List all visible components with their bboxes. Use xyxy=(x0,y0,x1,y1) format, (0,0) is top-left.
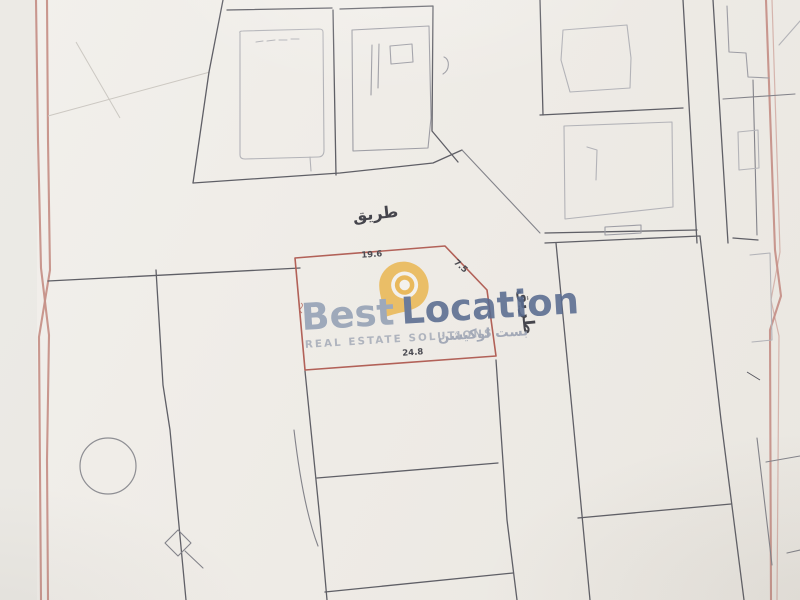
faint-corner-line xyxy=(779,21,800,45)
plots-right xyxy=(545,236,800,600)
building-outline xyxy=(310,157,311,171)
building-detail xyxy=(256,39,299,42)
building-detail xyxy=(371,44,379,95)
road-edge xyxy=(713,0,728,243)
plot-boundary xyxy=(733,238,758,240)
dimension-corner: 7.5 xyxy=(451,258,469,276)
building-detail xyxy=(587,147,597,180)
plot-boundary xyxy=(48,268,300,281)
building-detail xyxy=(738,130,759,170)
plot-boundary xyxy=(193,0,223,183)
page-border-left xyxy=(36,0,50,600)
dimension-bottom: 24.8 xyxy=(402,347,424,358)
plot-boundary xyxy=(496,360,517,600)
site-plan-canvas: 19.6 24.8 7.5 طريق طريق BestLocation REA… xyxy=(0,0,800,600)
plot-boundary xyxy=(540,0,543,115)
road-edge xyxy=(683,0,697,243)
plot-boundary xyxy=(700,236,744,600)
plot-boundary xyxy=(325,573,513,592)
building-detail xyxy=(443,57,448,74)
watermark: BestLocation REAL ESTATE SOLUTIONS بست ل… xyxy=(298,241,581,353)
flag-marker-stem xyxy=(185,551,203,568)
plot-detail xyxy=(747,372,760,380)
border-line xyxy=(766,0,781,600)
plot-boundary xyxy=(753,80,757,235)
plots-left xyxy=(48,268,300,600)
plot-boundary xyxy=(305,371,327,600)
building-detail xyxy=(390,44,413,64)
plots-top-left xyxy=(193,0,540,233)
faint-boundary xyxy=(48,72,210,116)
road-top-edge xyxy=(193,150,462,183)
plot-boundary xyxy=(545,230,697,233)
road-label-top: طريق xyxy=(352,202,399,226)
building-outline xyxy=(561,25,631,92)
road-edge-diagonal xyxy=(462,150,540,233)
plots-bottom-center xyxy=(294,360,517,600)
page-margin-left xyxy=(0,0,37,600)
building-detail xyxy=(605,225,641,235)
building-outline xyxy=(240,29,324,159)
building-outline xyxy=(750,253,772,342)
plot-boundary xyxy=(545,236,700,243)
flag-marker xyxy=(165,530,191,556)
brand-first-word: Best xyxy=(300,290,395,339)
building-outline xyxy=(352,26,431,151)
plot-boundary xyxy=(156,270,186,600)
plot-boundary xyxy=(578,504,731,518)
page-border-right xyxy=(766,0,781,600)
plot-boundary xyxy=(540,108,683,115)
plot-boundary xyxy=(787,550,800,553)
plot-boundary xyxy=(227,8,332,10)
dimension-top: 19.6 xyxy=(361,249,383,260)
plots-top-right xyxy=(540,0,795,243)
plot-boundary xyxy=(333,10,336,175)
circle-feature xyxy=(80,438,136,494)
plot-boundary xyxy=(294,430,318,546)
plot-boundary xyxy=(317,463,498,478)
building-outline xyxy=(727,6,769,78)
plot-boundary xyxy=(723,94,795,99)
scanned-site-plan: 19.6 24.8 7.5 طريق طريق BestLocation REA… xyxy=(0,0,800,600)
building-outline xyxy=(564,122,673,219)
